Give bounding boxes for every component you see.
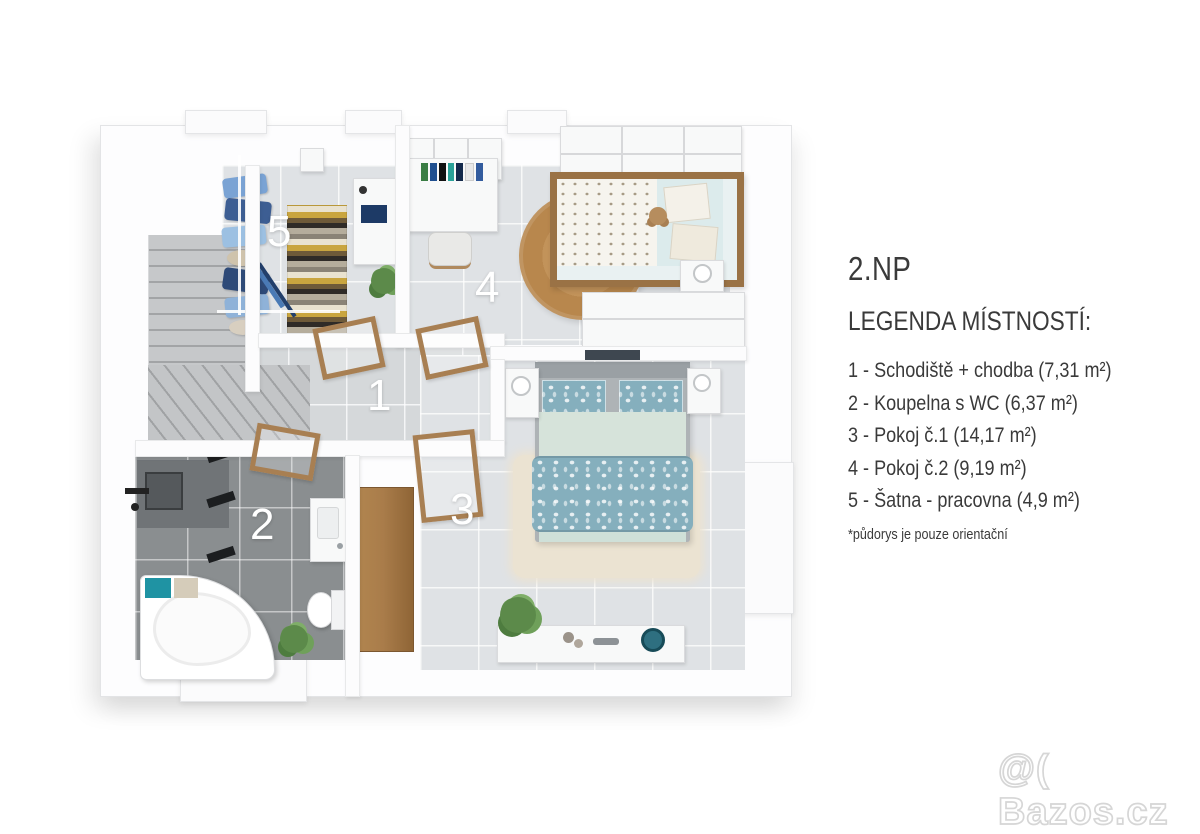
book-spine [448, 163, 455, 181]
exterior-wall-segment [345, 110, 402, 134]
pendant-lamp [511, 376, 531, 396]
dresser [582, 292, 745, 347]
toilet-tank [331, 590, 345, 630]
pillow [619, 380, 683, 414]
bed-blanket [557, 179, 657, 266]
book-spine [456, 163, 463, 181]
shower-head [145, 472, 183, 510]
headboard [535, 362, 690, 378]
legend-footnote: *půdorys je pouze orientační [848, 526, 1008, 543]
wooden-wardrobe [358, 487, 414, 652]
shower-arm [125, 488, 149, 494]
sink-basin [317, 507, 339, 539]
legend-item: 5 - Šatna - pracovna (4,9 m²) [848, 484, 1112, 517]
towel-teal [145, 578, 171, 598]
duvet [532, 456, 693, 532]
pillow [542, 380, 606, 414]
section-line [217, 310, 340, 313]
room-label-hallway: 1 [367, 374, 391, 418]
legend-item: 1 - Schodiště + chodba (7,31 m²) [848, 354, 1112, 387]
book-row [421, 163, 483, 181]
wall-fixture [300, 148, 324, 172]
book-spine [476, 163, 483, 181]
wall [395, 125, 410, 347]
pillow [663, 183, 711, 223]
decor-pots [563, 632, 574, 643]
floorplan: 1 2 3 4 5 [95, 110, 805, 710]
decor-vase [641, 628, 665, 652]
decor-tray [593, 638, 619, 645]
exterior-wall-segment [740, 462, 794, 614]
legend-items: 1 - Schodiště + chodba (7,31 m²) 2 - Kou… [848, 354, 1162, 517]
floor-title: 2.NP [848, 250, 911, 288]
double-bed [535, 362, 690, 542]
bathroom-plant [280, 625, 308, 653]
bathroom-sink [310, 498, 346, 562]
room-label-bedroom2: 4 [475, 266, 499, 310]
shower-valve [131, 503, 139, 511]
book-spine [430, 163, 437, 181]
exterior-wall-segment [507, 110, 567, 134]
bed-sheet [539, 412, 686, 456]
wall [490, 359, 505, 442]
wall [245, 165, 260, 392]
wall [345, 455, 360, 697]
desk-lamp [359, 186, 367, 194]
legend-item: 2 - Koupelna s WC (6,37 m²) [848, 387, 1112, 420]
room-label-bedroom1: 3 [450, 488, 474, 532]
laptop [361, 205, 387, 223]
desk-chair [428, 232, 472, 266]
teddy-bear [649, 207, 667, 225]
room-label-bathroom: 2 [250, 503, 274, 547]
legend-item: 4 - Pokoj č.2 (9,19 m²) [848, 452, 1112, 485]
table-lamp [693, 264, 712, 283]
pillow [670, 223, 719, 263]
room-label-closet: 5 [267, 210, 291, 254]
exterior-wall-segment [185, 110, 267, 134]
book-spine [439, 163, 446, 181]
potted-plant [371, 268, 397, 294]
bed-foot-blanket [539, 532, 686, 542]
headboard-decor [585, 350, 640, 360]
legend-heading: LEGENDA MÍSTNOSTÍ: [848, 306, 1091, 337]
book-spine [421, 163, 428, 181]
watermark-bazos: @( Bazos.cz [998, 748, 1200, 834]
section-line [238, 155, 241, 315]
shelf-plant [500, 597, 536, 633]
legend-item: 3 - Pokoj č.1 (14,17 m²) [848, 419, 1112, 452]
towel-beige [174, 578, 198, 598]
pendant-lamp [693, 374, 711, 392]
book-spine [465, 163, 474, 181]
faucet [337, 543, 343, 549]
bathtub-basin [153, 592, 251, 666]
